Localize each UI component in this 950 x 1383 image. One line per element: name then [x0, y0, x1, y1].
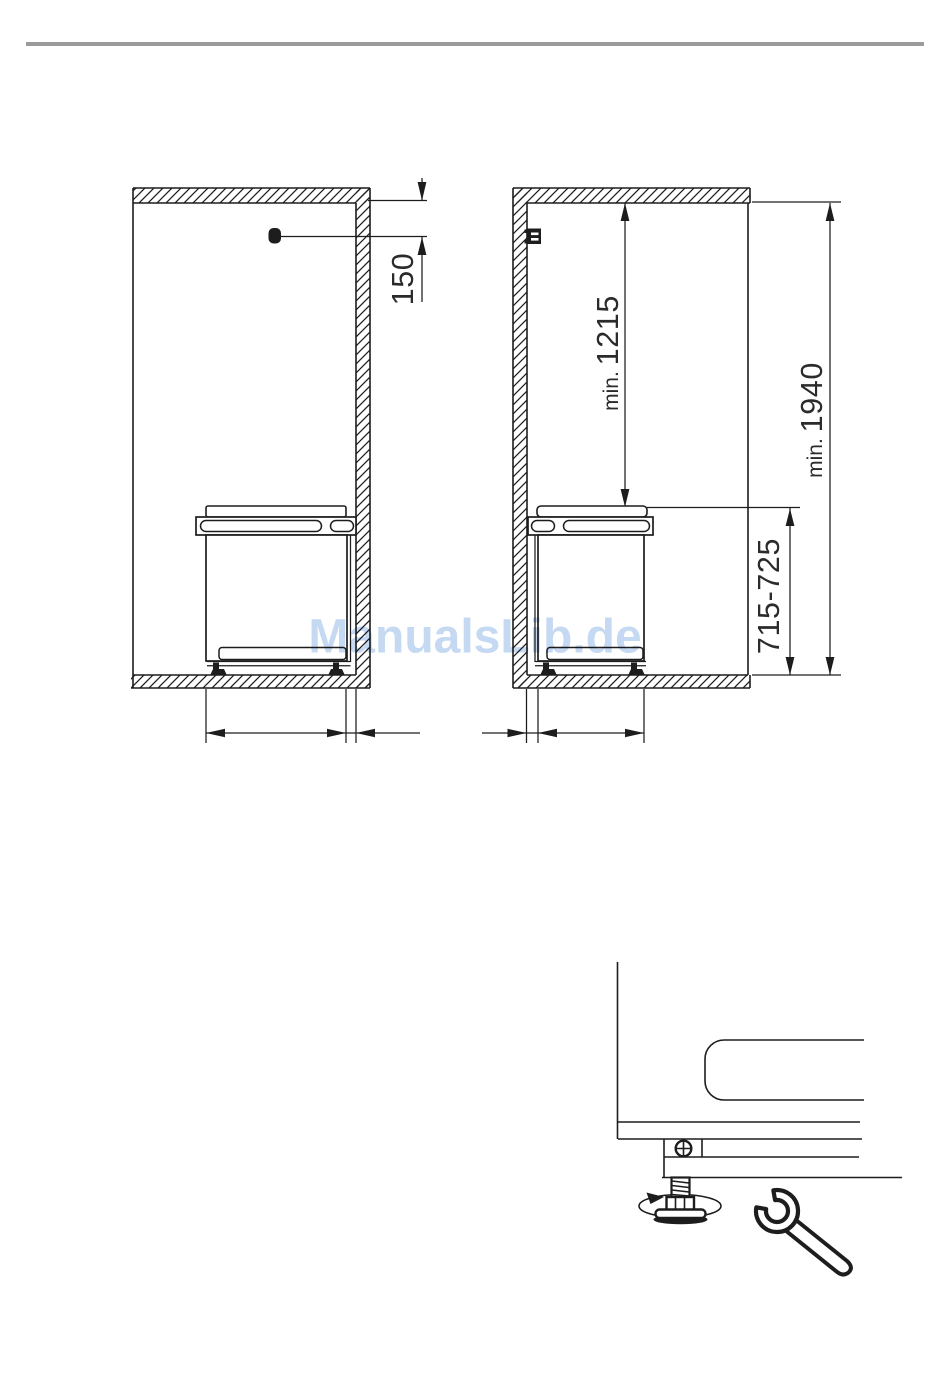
bottom-dimension-lines-right: [482, 689, 644, 743]
appliance-corner-lines: [618, 962, 903, 1178]
dim-label-sensor-clearance: 150: [388, 253, 419, 306]
wrench-icon: [756, 1190, 851, 1275]
dim-label-total-niche-height: min. 1940: [797, 362, 828, 478]
foot-adjustment-detail: [618, 962, 903, 1275]
manual-page: 150 min. 1215 min. 1940 715-725 ManualsL…: [0, 0, 950, 1383]
dim-prefix: min.: [804, 432, 827, 478]
dim-value: 1940: [795, 362, 829, 432]
dim-label-ceiling-to-appliance: min. 1215: [593, 295, 624, 411]
dim-value: 715-725: [752, 538, 786, 654]
watermark: ManualsLib.de: [308, 610, 641, 665]
sensor-icon: [269, 228, 428, 244]
adjustable-foot-icon: [654, 1178, 708, 1225]
dim-value: 150: [386, 253, 420, 306]
dim-label-appliance-height: 715-725: [754, 538, 785, 654]
installation-figure: [0, 0, 950, 1383]
dim-value: 1215: [591, 295, 625, 365]
dim-prefix: min.: [600, 365, 623, 411]
bottom-dimension-lines-left: [206, 689, 420, 743]
screw-icon: [676, 1141, 692, 1157]
